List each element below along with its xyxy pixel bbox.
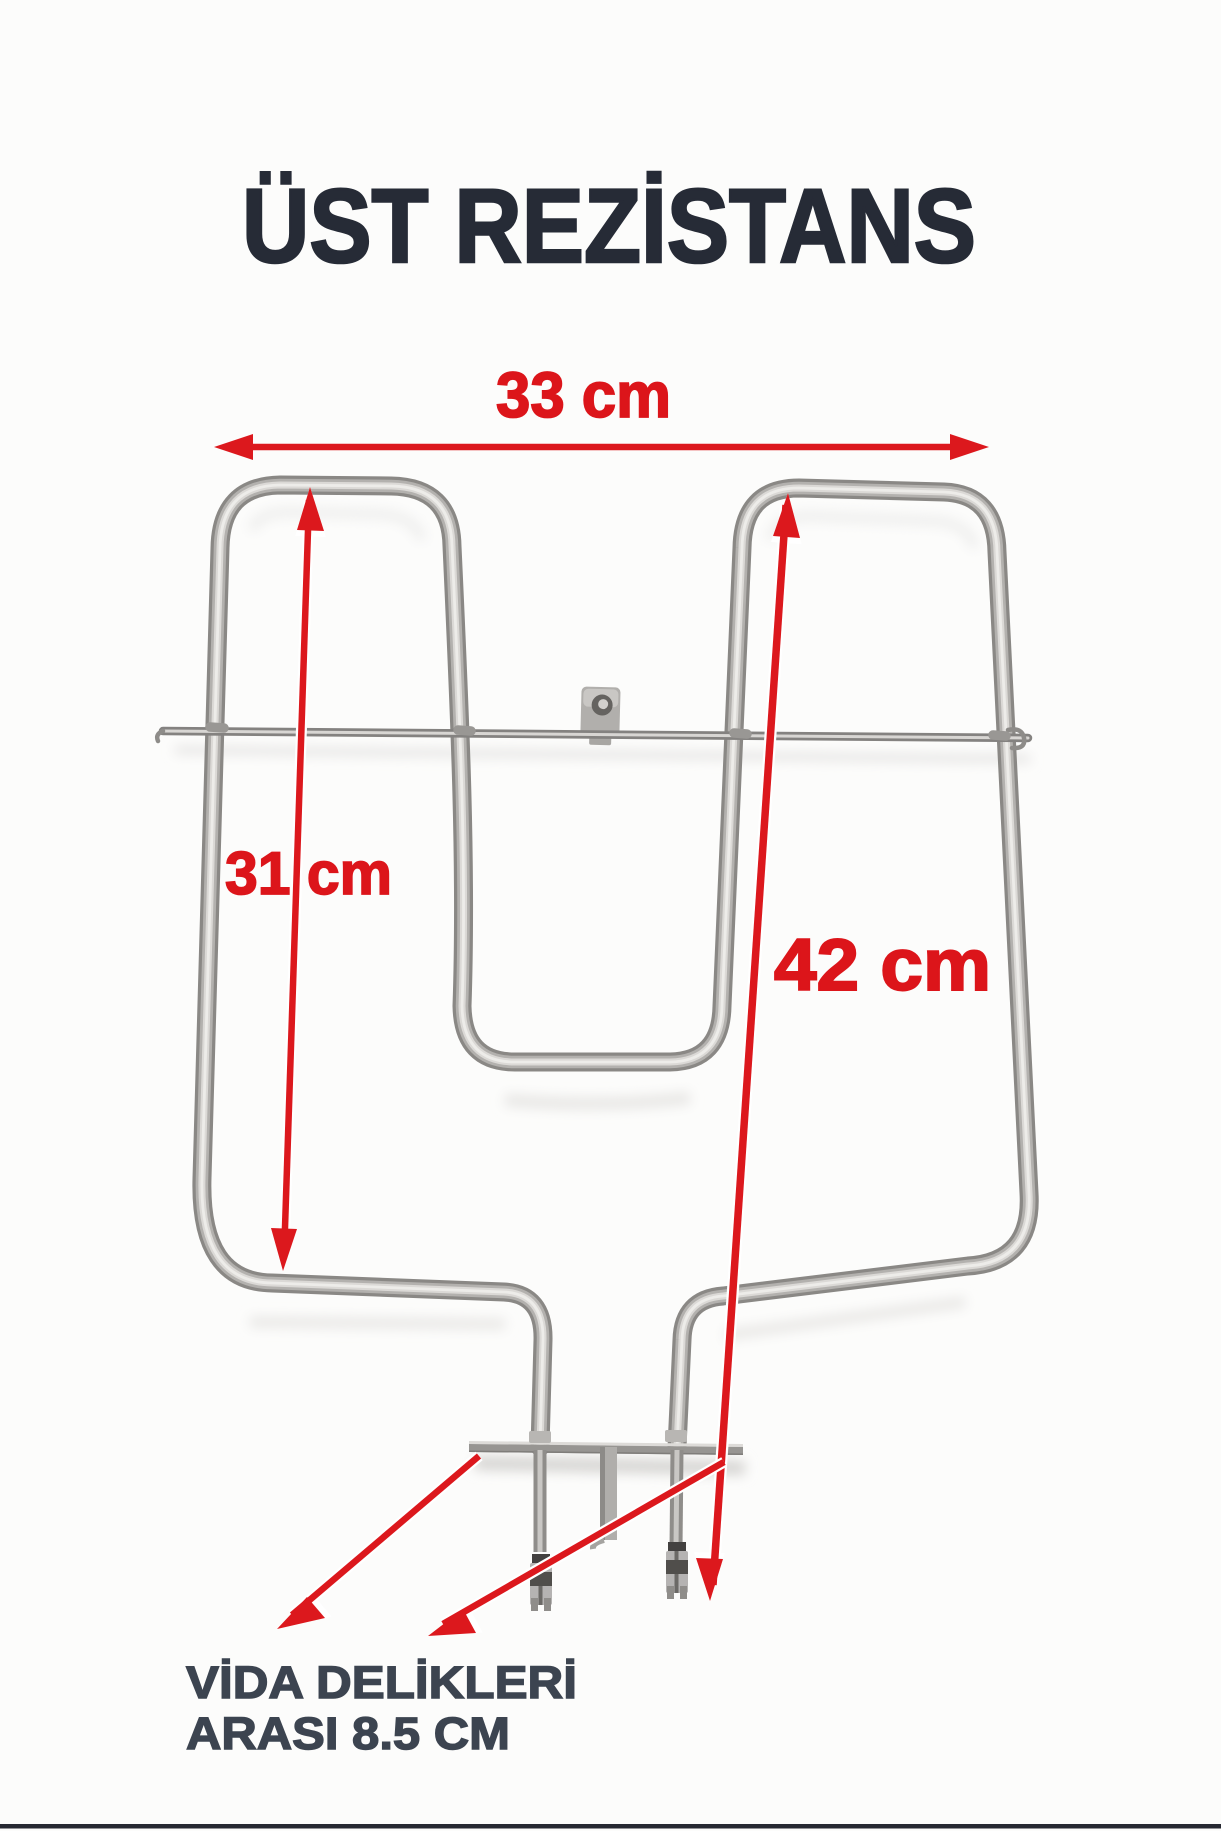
svg-text:ARASI 8.5 CM: ARASI 8.5 CM <box>186 1708 510 1759</box>
svg-text:31 cm: 31 cm <box>225 840 392 907</box>
svg-text:VİDA DELİKLERİ: VİDA DELİKLERİ <box>186 1657 577 1708</box>
svg-text:ÜST REZİSTANS: ÜST REZİSTANS <box>242 168 976 285</box>
svg-text:42 cm: 42 cm <box>774 925 991 1006</box>
svg-text:33 cm: 33 cm <box>496 359 671 431</box>
